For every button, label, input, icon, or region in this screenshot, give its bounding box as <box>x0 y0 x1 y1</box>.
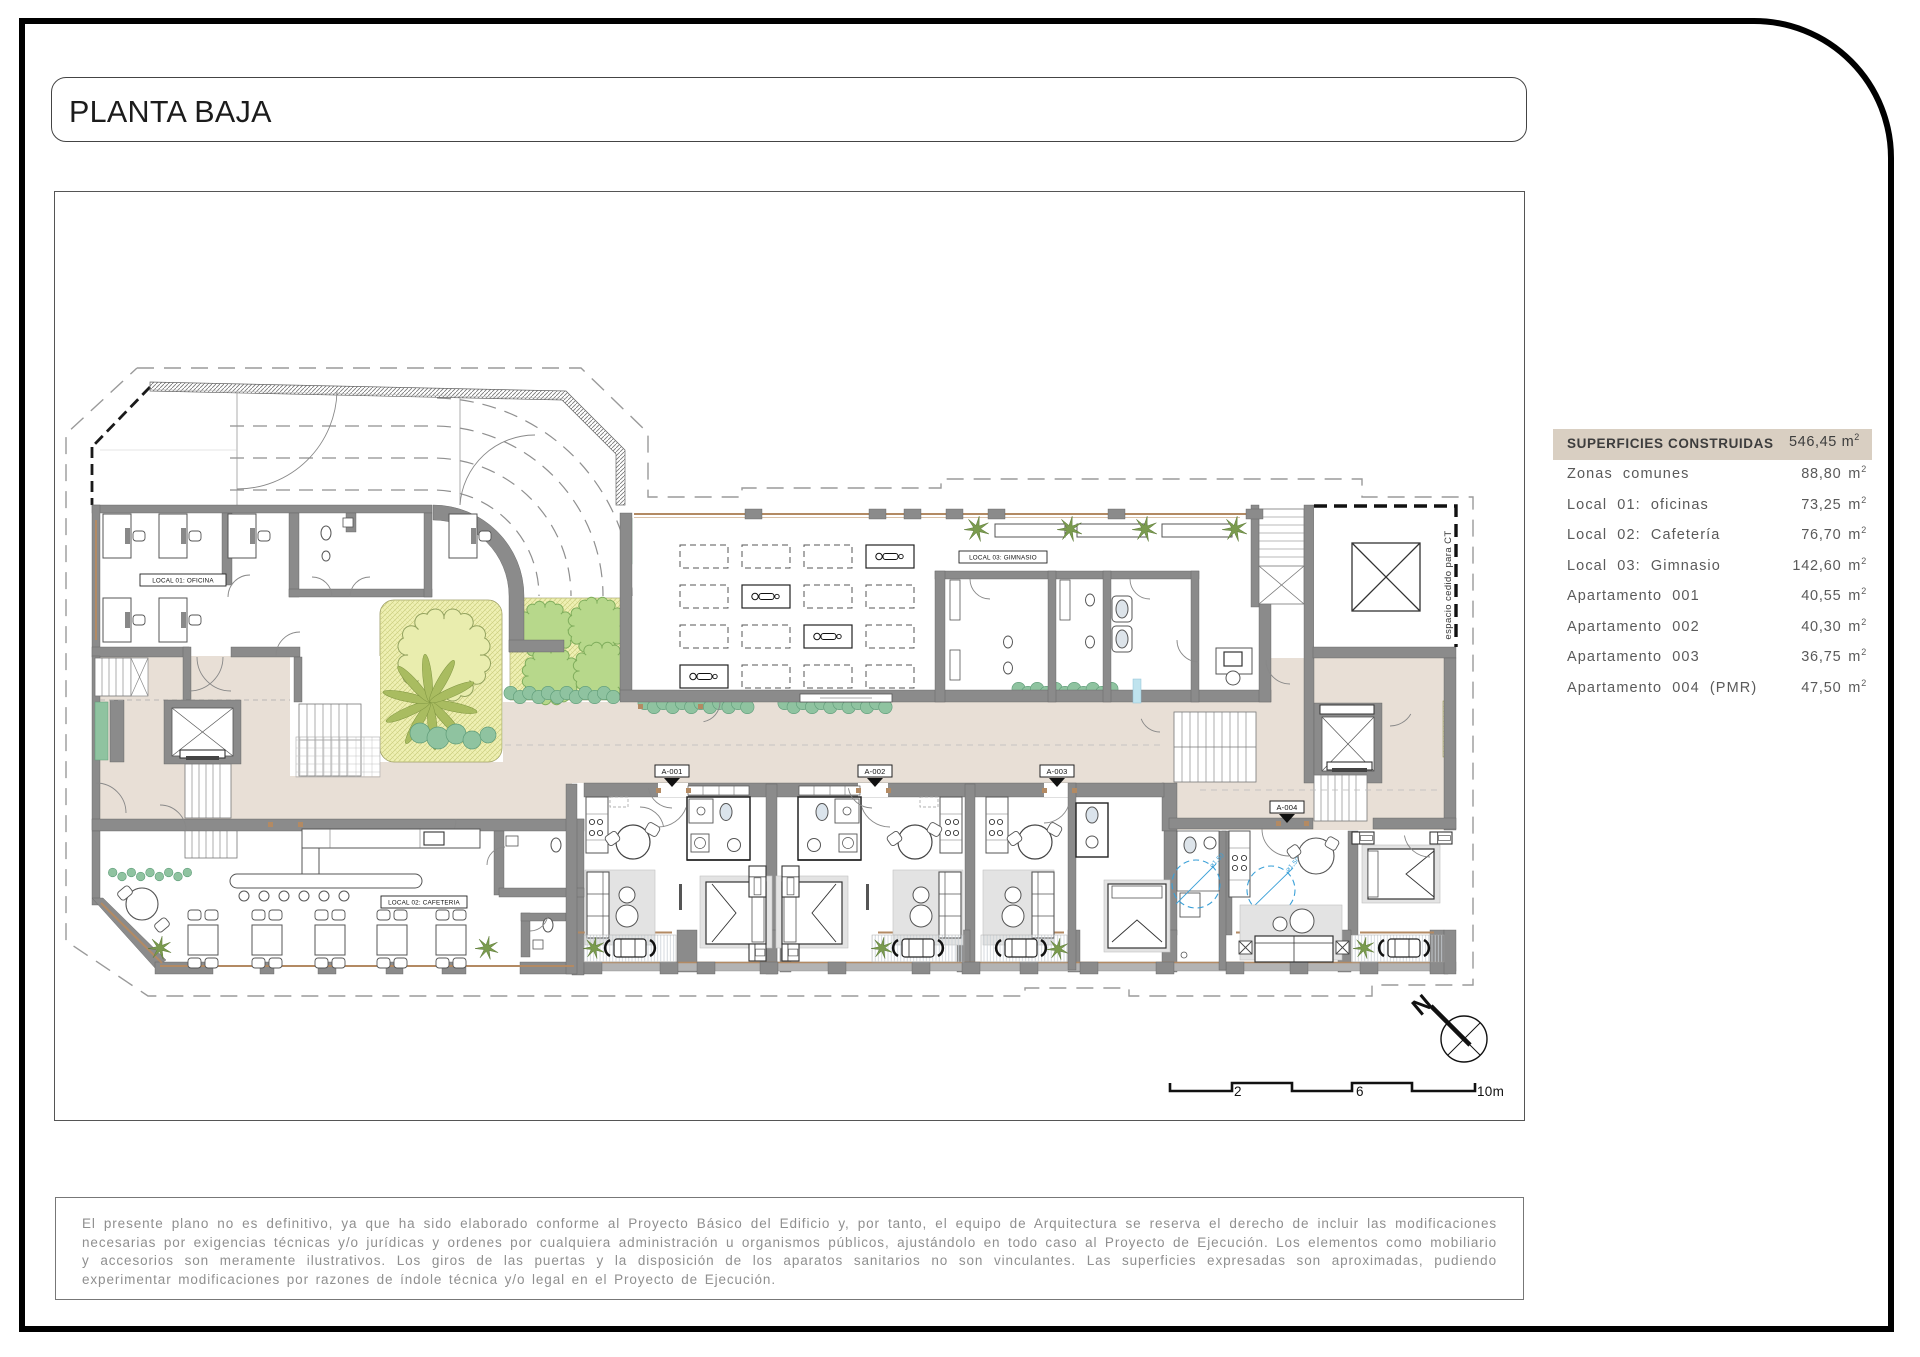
svg-text:6: 6 <box>1356 1084 1364 1099</box>
svg-text:espacio cedido para CT: espacio cedido para CT <box>1443 530 1454 639</box>
svg-text:LOCAL 01: OFICINA: LOCAL 01: OFICINA <box>152 577 214 584</box>
svg-text:LOCAL 02: CAFETERIA: LOCAL 02: CAFETERIA <box>388 899 460 906</box>
svg-text:N: N <box>1407 989 1438 1021</box>
svg-text:A-002: A-002 <box>864 767 885 776</box>
svg-text:A-001: A-001 <box>661 767 682 776</box>
svg-text:A-004: A-004 <box>1276 803 1297 812</box>
svg-text:A-003: A-003 <box>1046 767 1067 776</box>
svg-text:10m: 10m <box>1477 1084 1504 1099</box>
svg-text:LOCAL 03: GIMNASIO: LOCAL 03: GIMNASIO <box>969 554 1037 561</box>
svg-text:2: 2 <box>1234 1084 1242 1099</box>
